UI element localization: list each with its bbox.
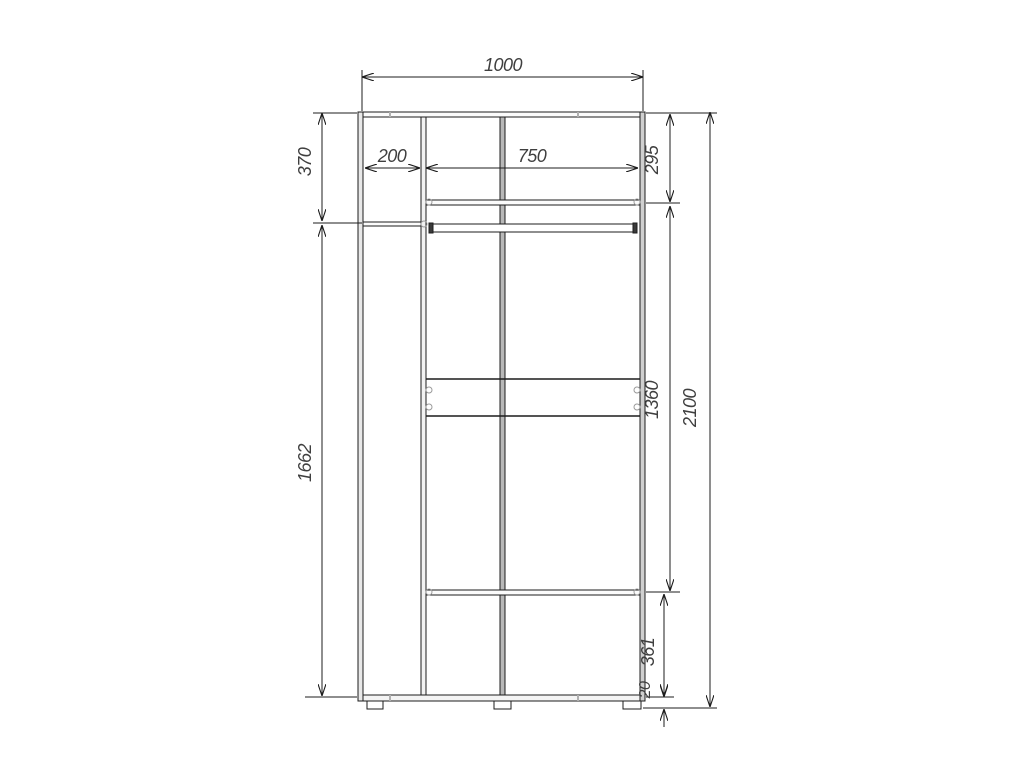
dimension-top-right-height: 295 [642,114,670,202]
dimension-label: 1000 [484,55,523,75]
dimension-height-total: 2100 [680,112,710,707]
dowel-mark [577,695,579,701]
dimension-label: 200 [377,146,407,166]
technical-drawing: 1000 200 750 370 1662 295 1360 3 [0,0,1024,768]
bottom-panel [358,695,645,701]
left-shelf [363,222,421,226]
connector-dot [634,404,640,410]
connector-dot [426,404,432,410]
dimension-label: 295 [642,144,662,175]
dimension-width-total: 1000 [362,55,643,77]
foot-center [494,701,511,709]
foot-left [367,701,383,709]
dimension-label: 20 [637,681,654,699]
drawing-canvas: 1000 200 750 370 1662 295 1360 3 [0,0,1024,768]
left-side-panel [358,112,363,701]
dowel-mark [577,112,579,117]
dowel-mark [389,112,391,117]
connector-dot [634,387,640,393]
hanging-rod-left-bracket [429,223,433,233]
dimension-right-middle-height: 1360 [642,206,670,591]
connector-dot [426,387,432,393]
hanging-rod-right-bracket [633,223,637,233]
dimension-label: 2100 [680,388,700,428]
right-top-shelf [426,200,640,205]
dimension-label: 370 [295,147,315,176]
dimension-label: 750 [518,146,547,166]
cabinet-body [358,112,645,709]
dimension-left-section-width: 200 [365,146,420,168]
top-panel [358,112,645,117]
dimension-label: 1662 [295,443,315,482]
hanging-rod [429,224,637,232]
dimension-label: 1360 [642,380,662,419]
dimension-right-section-width: 750 [426,146,638,168]
lower-shelf [426,590,640,595]
dimension-label: 361 [638,638,658,667]
dimension-left-lower-height: 1662 [295,225,322,696]
dowel-mark [389,695,391,701]
dimension-top-left-height: 370 [295,113,322,221]
foot-right [623,701,641,709]
partition-panel [421,117,426,695]
